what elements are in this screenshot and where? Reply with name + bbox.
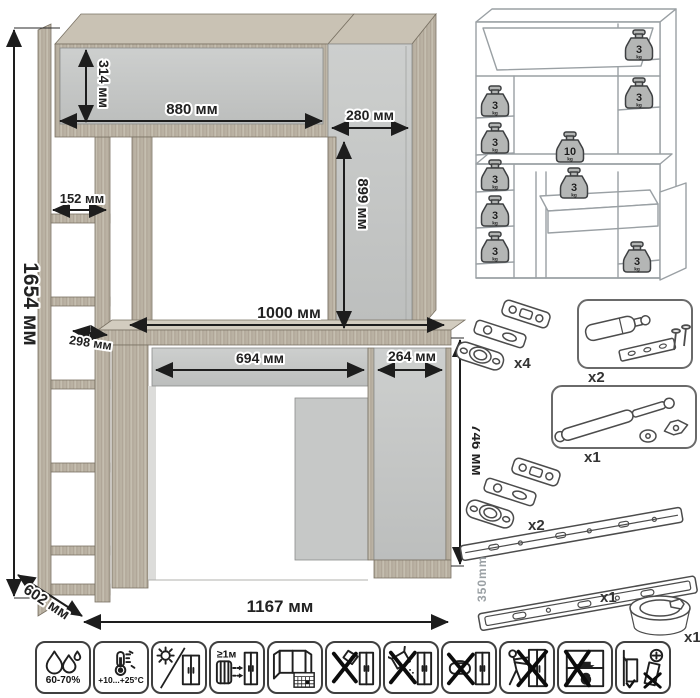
svg-text:kg: kg — [636, 55, 642, 61]
dim-top-right-width: 280 мм — [346, 107, 394, 123]
wall-anchoring-icon — [620, 646, 666, 690]
load-capacity-schematic: 3kg 3kg 3kg 3kg 3kg 3kg — [452, 2, 698, 294]
temperature-label: +10...+25°C — [98, 676, 143, 685]
svg-text:3: 3 — [492, 137, 498, 149]
icon-ventilate — [267, 641, 323, 694]
icon-anchor-to-wall — [615, 641, 671, 694]
main-dimension-drawing: 1654 мм 314 мм 880 мм 280 мм 899 мм 152 … — [2, 4, 480, 649]
svg-text:3: 3 — [636, 92, 642, 104]
crossed-axe-icon — [330, 646, 376, 690]
svg-text:kg: kg — [492, 148, 498, 154]
icon-do-not-overload — [557, 641, 613, 694]
dim-door-width: 264 мм — [388, 348, 436, 364]
cabinet-base — [374, 560, 451, 578]
window-calendar-icon — [272, 646, 318, 690]
slides-qty: x1 — [600, 589, 617, 606]
dim-drawer-width: 694 мм — [236, 350, 284, 366]
dim-hutch-height: 314 мм — [96, 60, 112, 108]
gas-lift-qty: x1 — [584, 449, 601, 466]
crossed-powder-icon — [388, 646, 434, 690]
sun-wardrobe-icon — [156, 646, 202, 690]
shelf-column-right-board — [95, 137, 110, 602]
svg-text:3: 3 — [636, 44, 642, 56]
open-shelf-column — [51, 137, 110, 602]
right-column-side — [412, 14, 436, 338]
svg-text:kg: kg — [634, 267, 640, 273]
svg-text:kg: kg — [492, 221, 498, 227]
svg-text:3: 3 — [634, 256, 640, 268]
grommet-qty: x1 — [684, 629, 700, 646]
care-icons-row: 60-70% +10...+25°C ≥1м — [35, 641, 671, 695]
svg-text:kg: kg — [567, 157, 573, 163]
svg-text:3: 3 — [492, 100, 498, 112]
dim-shelf-inner-width: 152 мм — [60, 191, 105, 206]
icon-temperature: +10...+25°C — [93, 641, 149, 694]
svg-text:kg: kg — [492, 185, 498, 191]
crossed-sponge-icon — [446, 646, 492, 690]
svg-text:3: 3 — [492, 246, 498, 258]
cup-hinge-icon — [454, 299, 551, 372]
icon-heat-distance: ≥1м — [209, 641, 265, 694]
cabinet-door — [374, 348, 446, 560]
hardware-panel: x4 x2 x1 x2 — [452, 294, 700, 646]
humidity-label: 60-70% — [46, 675, 80, 686]
icon-no-wet-cleaning — [441, 641, 497, 694]
desktop-edge — [98, 330, 451, 345]
cable-grommet-icon — [630, 596, 690, 635]
crossed-heavy-load-icon — [562, 646, 608, 690]
slides-length-label: 350mm — [475, 556, 489, 602]
crossed-pushing-person-icon — [504, 646, 550, 690]
svg-text:kg: kg — [571, 193, 577, 199]
hinge-top-qty: x4 — [514, 355, 531, 372]
distance-label: ≥1м — [217, 648, 237, 660]
icon-avoid-sunlight — [151, 641, 207, 694]
svg-text:3: 3 — [492, 174, 498, 186]
dim-hutch-width: 880 мм — [166, 101, 217, 118]
svg-text:kg: kg — [492, 111, 498, 117]
svg-text:kg: kg — [492, 257, 498, 263]
svg-text:3: 3 — [492, 210, 498, 222]
svg-text:10: 10 — [564, 146, 576, 158]
dim-desktop-width: 1000 мм — [257, 305, 321, 322]
radiator-distance-icon: ≥1м — [214, 646, 260, 690]
icon-no-abrasives — [383, 641, 439, 694]
icon-humidity: 60-70% — [35, 641, 91, 694]
hutch-top-face — [55, 14, 354, 44]
dim-total-height: 1654 мм — [19, 262, 42, 346]
desk-left-side — [112, 345, 148, 588]
thermometer-icon — [98, 650, 144, 676]
hutch-left-support-wall — [132, 137, 152, 334]
desk-back-panel — [295, 398, 368, 560]
dim-total-width: 1167 мм — [247, 597, 314, 616]
dim-right-column-height: 899 мм — [354, 178, 371, 229]
damper-qty: x2 — [588, 369, 605, 386]
icon-do-not-drag — [499, 641, 555, 694]
svg-text:3: 3 — [571, 182, 577, 194]
icon-no-impact-tools — [325, 641, 381, 694]
open-cabinet-door — [660, 183, 686, 280]
svg-text:kg: kg — [636, 103, 642, 109]
cup-hinge-icon — [464, 457, 561, 530]
water-drops-icon — [40, 649, 86, 675]
